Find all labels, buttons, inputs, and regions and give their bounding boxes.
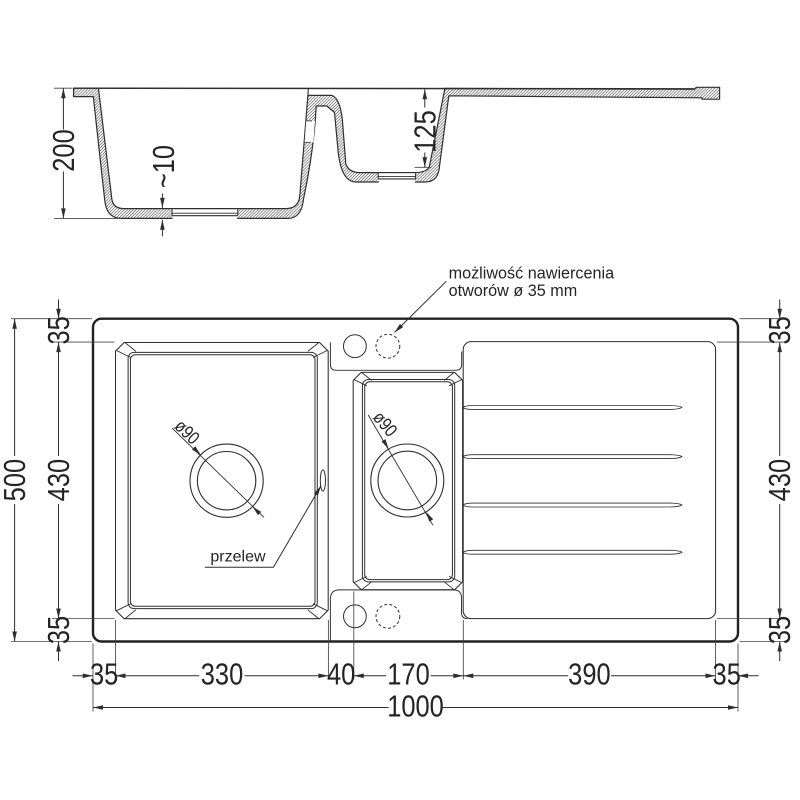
svg-text:35: 35 bbox=[763, 616, 797, 644]
svg-text:125: 125 bbox=[408, 110, 442, 152]
svg-text:~10: ~10 bbox=[147, 145, 181, 188]
svg-text:330: 330 bbox=[201, 657, 243, 691]
svg-text:430: 430 bbox=[763, 459, 797, 501]
svg-text:430: 430 bbox=[42, 459, 76, 501]
svg-text:200: 200 bbox=[47, 129, 81, 171]
svg-text:390: 390 bbox=[568, 657, 610, 691]
svg-text:35: 35 bbox=[763, 316, 797, 344]
svg-text:przelew: przelew bbox=[210, 549, 266, 566]
svg-text:35: 35 bbox=[42, 316, 76, 344]
svg-text:500: 500 bbox=[0, 459, 32, 501]
svg-text:170: 170 bbox=[387, 657, 429, 691]
svg-text:możliwość nawiercenia: możliwość nawiercenia bbox=[449, 265, 615, 283]
svg-text:35: 35 bbox=[90, 657, 118, 691]
svg-text:40: 40 bbox=[327, 657, 355, 691]
svg-text:1000: 1000 bbox=[387, 689, 444, 723]
svg-text:35: 35 bbox=[713, 657, 741, 691]
svg-text:otworów ø 35 mm: otworów ø 35 mm bbox=[449, 282, 578, 300]
svg-text:35: 35 bbox=[42, 616, 76, 644]
